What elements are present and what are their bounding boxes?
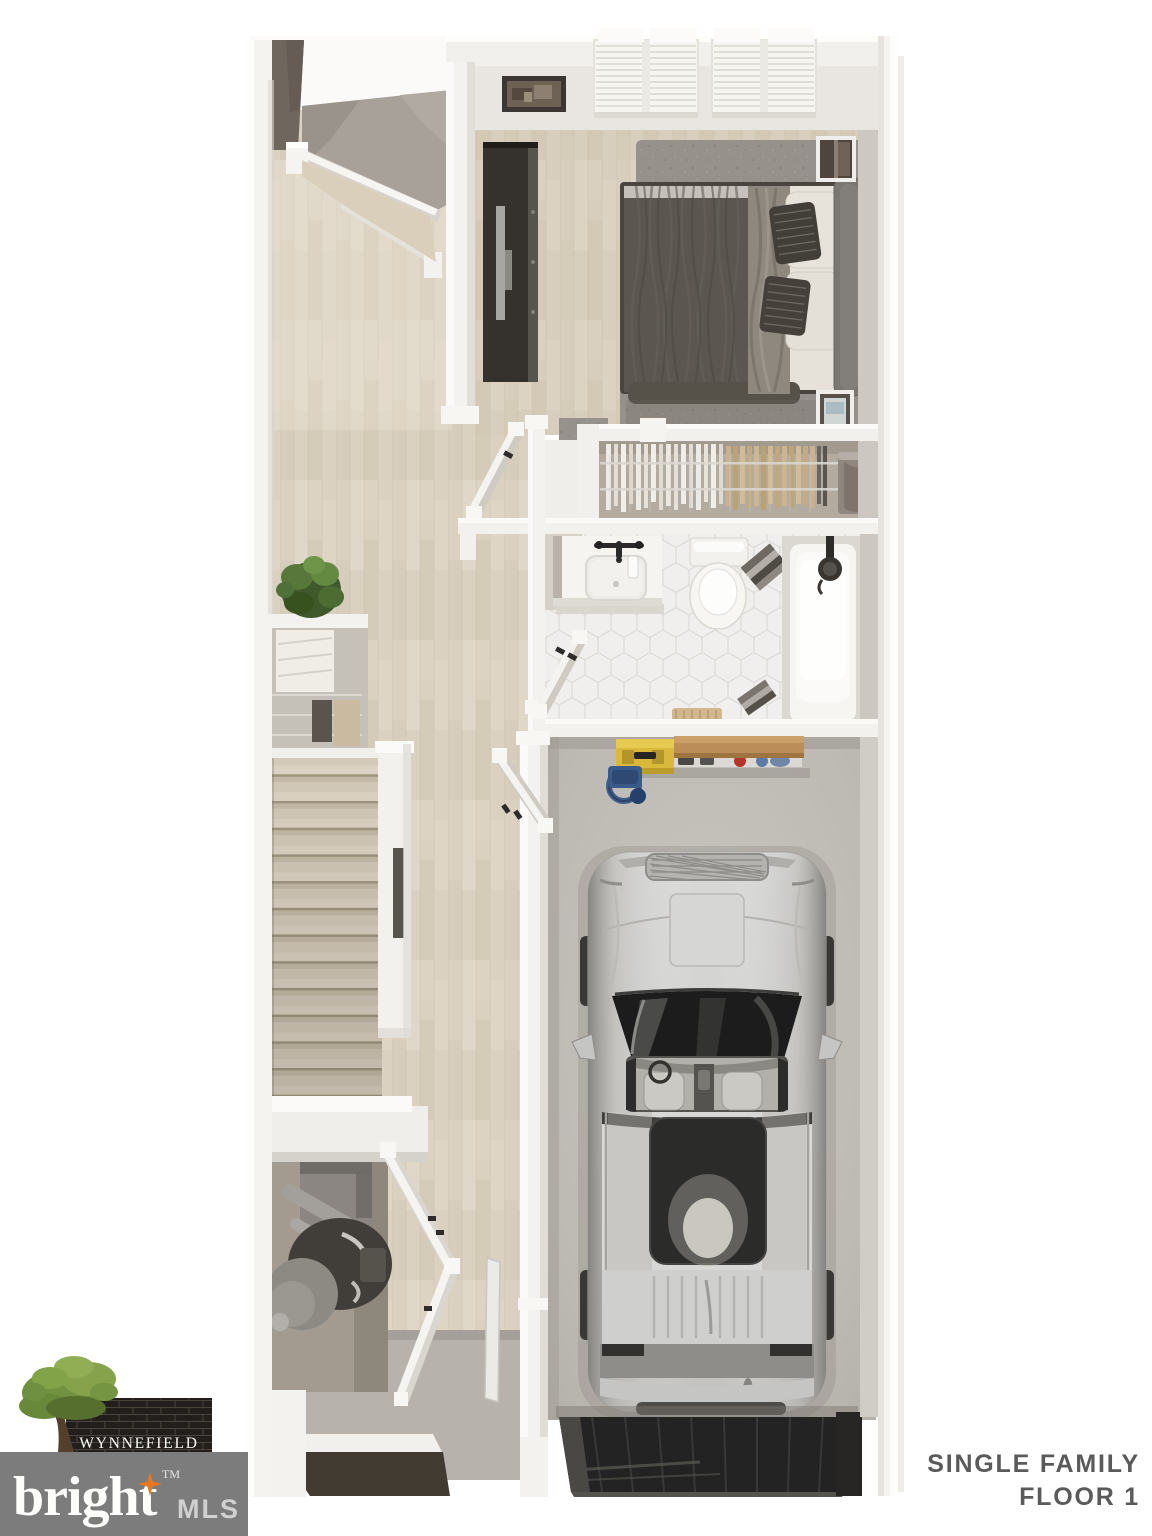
svg-text:TM: TM xyxy=(162,1467,180,1481)
svg-text:SINGLE FAMILY: SINGLE FAMILY xyxy=(927,1450,1140,1478)
svg-text:MLS: MLS xyxy=(177,1494,240,1524)
svg-text:WYNNEFIELD: WYNNEFIELD xyxy=(79,1435,199,1452)
svg-text:FLOOR 1: FLOOR 1 xyxy=(1019,1483,1140,1511)
svg-text:bright: bright xyxy=(13,1466,158,1528)
